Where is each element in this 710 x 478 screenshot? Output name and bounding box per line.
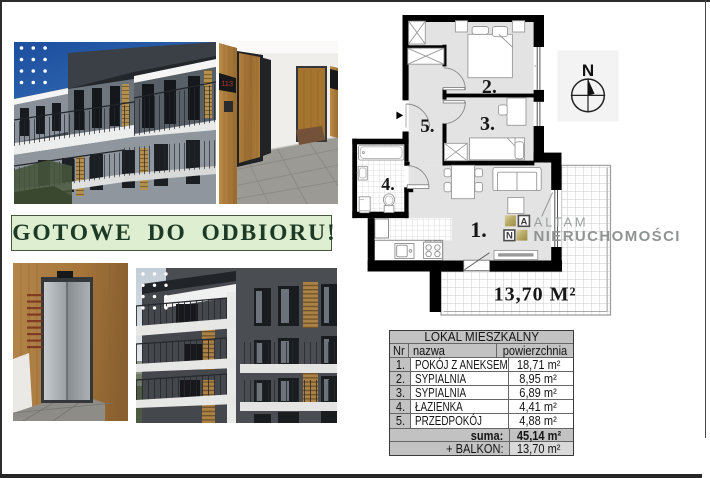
svg-text:NIERUCHOMOŚCI: NIERUCHOMOŚCI [534,227,681,245]
svg-text:13,70 M²: 13,70 M² [494,284,577,306]
svg-text:2.: 2. [482,76,497,98]
svg-text:N: N [506,231,513,242]
svg-text:3.: 3. [480,113,495,135]
svg-text:4.: 4. [381,174,395,194]
svg-text:1.: 1. [470,217,487,242]
svg-text:5.: 5. [420,116,434,137]
svg-text:N: N [582,61,594,80]
svg-text:A: A [520,216,527,227]
